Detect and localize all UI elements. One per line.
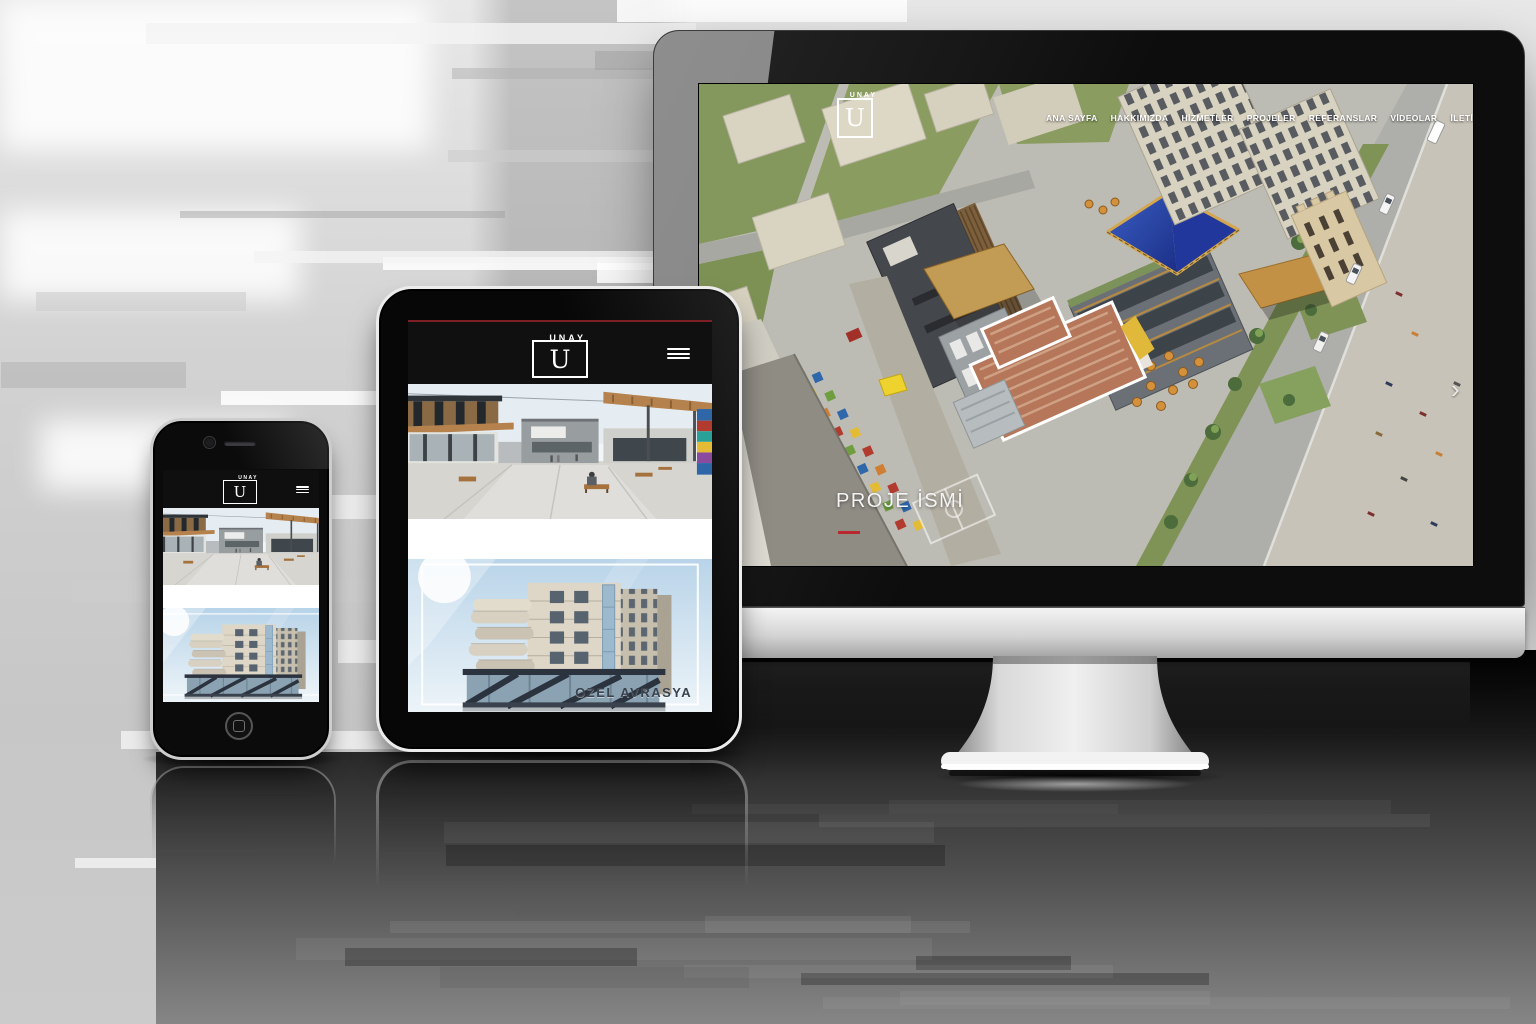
aerial-city-render	[699, 84, 1473, 566]
nav-item-iletisim[interactable]: İLETİŞİM	[1450, 113, 1473, 123]
nav-item-ana-sayfa[interactable]: ANA SAYFA	[1046, 113, 1098, 123]
phone-brand-logo[interactable]: UNAY U	[223, 475, 259, 505]
nav-item-hakkimizda[interactable]: HAKKIMIZDA	[1111, 113, 1169, 123]
tablet-device: UNAY U OZEL AVRASYA	[376, 286, 742, 752]
main-nav: ANA SAYFA HAKKIMIZDA HİZMETLER PROJELER …	[1046, 113, 1473, 123]
brand-initial-box: U	[223, 480, 257, 504]
tablet-brand-logo[interactable]: UNAY U	[532, 332, 588, 378]
desktop-brand-logo[interactable]: UNAY U	[837, 92, 873, 136]
phone-hero-image	[163, 508, 319, 585]
imac-chin	[653, 607, 1525, 658]
project-title: PROJE İSMİ	[836, 490, 964, 513]
brand-initial-box: U	[837, 98, 873, 138]
phone-device: UNAY U	[150, 418, 332, 760]
brand-initial-box: U	[532, 340, 588, 378]
tablet-menu-icon[interactable]	[667, 348, 690, 359]
responsive-mockup-stage: UNAY U ANA SAYFA HAKKIMIZDA HİZMETLER PR…	[0, 0, 1536, 1024]
desktop-screen: UNAY U ANA SAYFA HAKKIMIZDA HİZMETLER PR…	[699, 84, 1473, 566]
tablet-project-image: OZEL AVRASYA	[408, 559, 712, 712]
brand-initial: U	[549, 347, 570, 372]
project-title-underline	[838, 531, 860, 534]
project-image-caption: OZEL AVRASYA	[575, 685, 692, 700]
phone-content-gap	[163, 585, 319, 608]
phone-reflection	[150, 766, 336, 888]
phone-home-button[interactable]	[225, 712, 253, 740]
phone-header: UNAY U	[163, 470, 319, 508]
tablet-header: UNAY U	[408, 322, 712, 384]
imac-stand	[935, 656, 1215, 782]
tablet-content-gap	[408, 519, 712, 559]
brand-initial: U	[234, 485, 247, 500]
nav-item-videolar[interactable]: VİDEOLAR	[1390, 113, 1437, 123]
brand-initial: U	[845, 106, 865, 130]
nav-item-hizmetler[interactable]: HİZMETLER	[1181, 113, 1233, 123]
imac-monitor: UNAY U ANA SAYFA HAKKIMIZDA HİZMETLER PR…	[653, 30, 1525, 658]
tablet-screen: UNAY U OZEL AVRASYA	[408, 320, 712, 712]
front-camera	[203, 436, 216, 449]
carousel-next-icon[interactable]: ›	[1451, 376, 1460, 402]
phone-project-image	[163, 608, 319, 702]
tablet-reflection	[376, 760, 748, 916]
earpiece-speaker	[224, 441, 256, 446]
nav-item-referanslar[interactable]: REFERANSLAR	[1309, 113, 1378, 123]
tablet-hero-image	[408, 384, 712, 519]
nav-item-projeler[interactable]: PROJELER	[1247, 113, 1296, 123]
phone-menu-icon[interactable]	[296, 486, 309, 493]
phone-screen: UNAY U	[163, 470, 319, 702]
imac-bezel: UNAY U ANA SAYFA HAKKIMIZDA HİZMETLER PR…	[653, 30, 1525, 607]
